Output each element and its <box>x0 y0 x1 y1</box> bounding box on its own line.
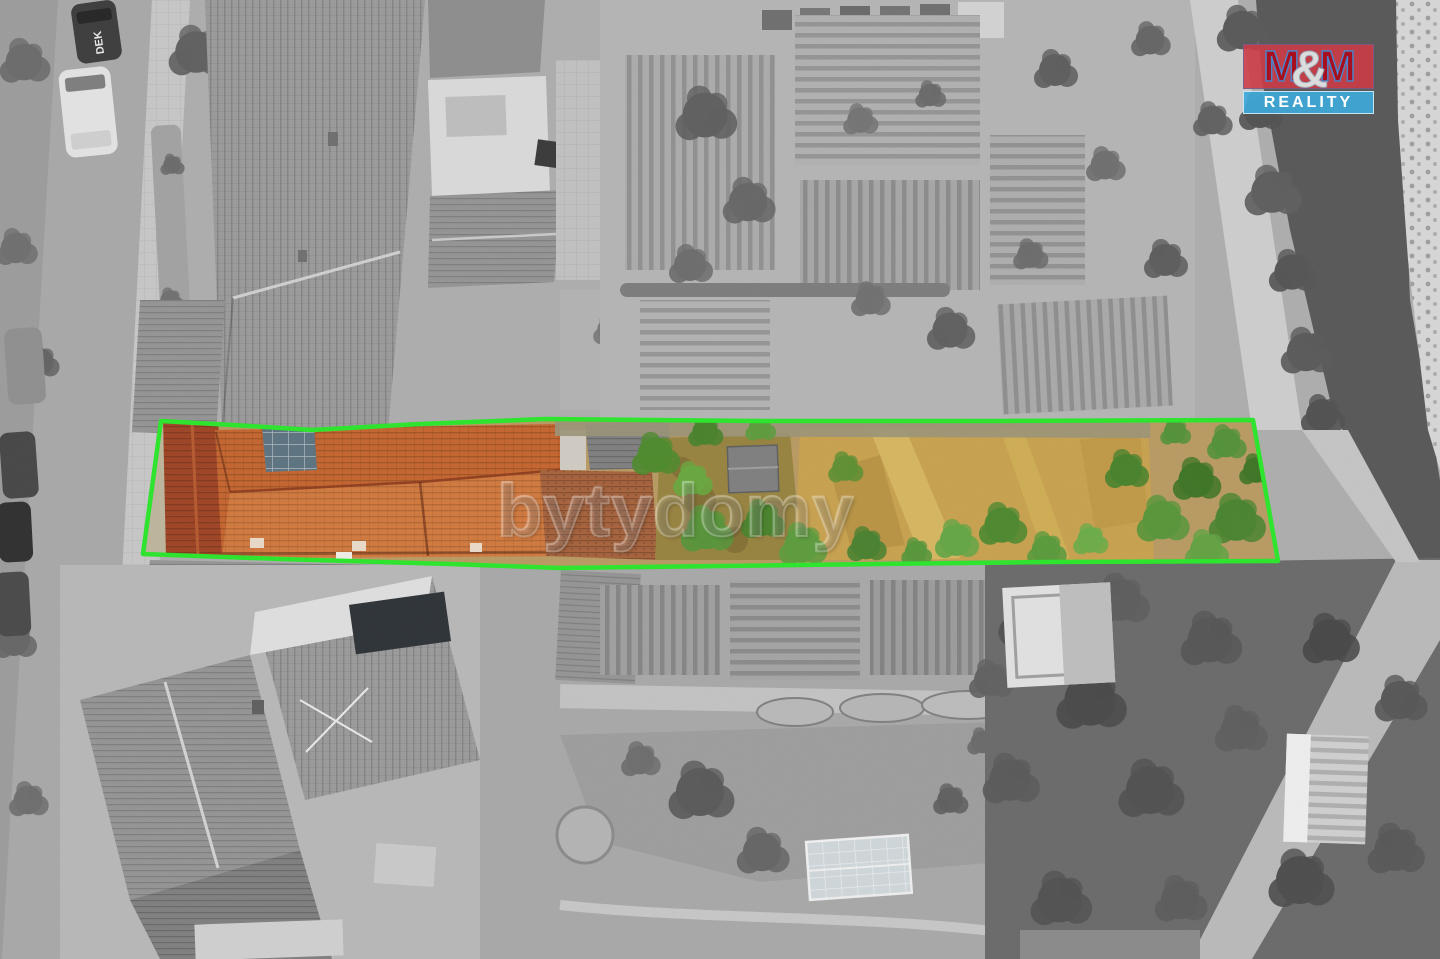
photo-grain <box>0 0 1440 959</box>
logo-ampersand: & <box>1291 44 1327 96</box>
logo-mm-block: M&M <box>1243 44 1374 89</box>
agency-logo: M&M REALITY <box>1243 44 1374 114</box>
aerial-photo: DEK <box>0 0 1440 959</box>
aerial-scene: DEK <box>0 0 1440 959</box>
